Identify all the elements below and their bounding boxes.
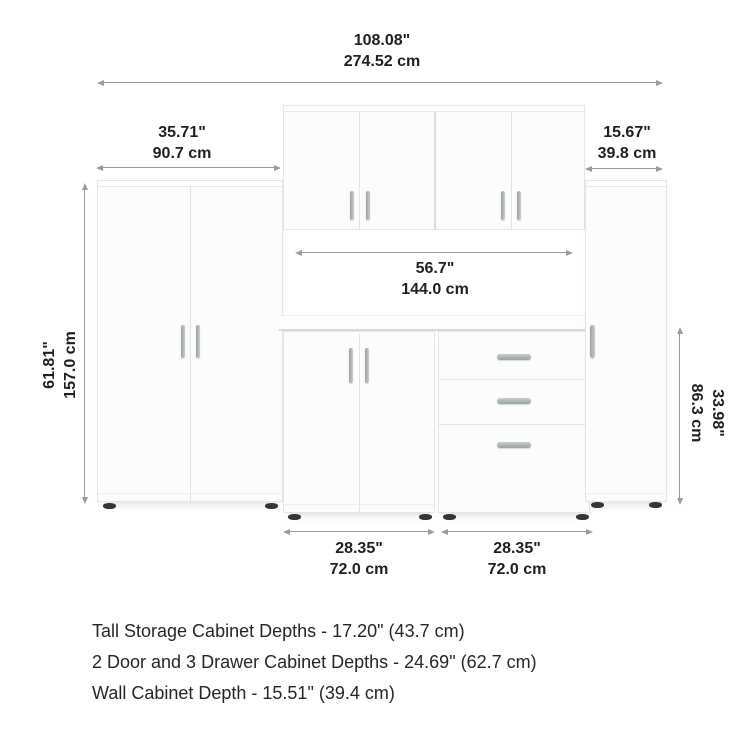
dim-value-cm: 72.0 cm	[417, 559, 617, 580]
dim-value-inches: 35.71"	[86, 122, 278, 143]
arrow-right-icon	[656, 166, 663, 172]
dim-line-tall-width	[96, 164, 281, 171]
door-handle-icon	[196, 325, 200, 358]
door-handle-icon	[365, 348, 369, 383]
dim-value-cm: 274.52 cm	[282, 51, 482, 72]
dim-value-inches: 61.81"	[39, 305, 60, 425]
dim-line-base-height	[676, 327, 683, 505]
cabinet-foot	[288, 514, 301, 520]
hutch-countertop	[279, 315, 592, 331]
unit-divider-seam	[434, 112, 436, 229]
note-wall-cabinet-depth: Wall Cabinet Depth - 15.51" (39.4 cm)	[92, 678, 537, 709]
dim-base-height-label: 33.98" 86.3 cm	[686, 353, 728, 473]
arrow-up-icon	[677, 327, 683, 334]
base-2door-cabinet	[283, 331, 435, 513]
dim-line-total-width	[97, 79, 663, 86]
drawer-seam	[439, 424, 589, 425]
dim-line-base-right-width	[441, 528, 593, 535]
wall-cabinet	[283, 105, 585, 230]
door-handle-icon	[349, 348, 353, 383]
door-handle-icon	[501, 191, 505, 220]
note-base-cabinet-depth: 2 Door and 3 Drawer Cabinet Depths - 24.…	[92, 647, 537, 678]
cabinet-foot	[649, 502, 662, 508]
cabinet-foot	[576, 514, 589, 520]
dim-value-cm: 86.3 cm	[686, 353, 707, 473]
dim-line-tall-height	[81, 183, 88, 504]
door-seam	[190, 187, 191, 501]
door-handle-icon	[366, 191, 370, 220]
dim-line-opening-width	[295, 249, 573, 256]
drawer-seam	[439, 379, 589, 380]
dim-value-cm: 39.8 cm	[567, 143, 687, 164]
arrow-down-icon	[82, 497, 88, 504]
dim-value-inches: 33.98"	[707, 353, 728, 473]
dim-line-base-left-width	[283, 528, 435, 535]
arrow-left-icon	[441, 529, 448, 535]
dim-value-cm: 90.7 cm	[86, 143, 278, 164]
arrow-left-icon	[96, 165, 103, 171]
note-tall-cabinet-depth: Tall Storage Cabinet Depths - 17.20" (43…	[92, 616, 537, 647]
dim-value-inches: 15.67"	[567, 122, 687, 143]
door-seam	[511, 112, 512, 229]
arrow-right-icon	[656, 80, 663, 86]
door-handle-icon	[181, 325, 185, 358]
door-seam	[359, 334, 360, 512]
kick-plate-line	[284, 504, 434, 505]
arrow-right-icon	[274, 165, 281, 171]
cabinet-foot	[419, 514, 432, 520]
door-handle-icon	[350, 191, 354, 220]
door-handle-icon	[517, 191, 521, 220]
arrow-left-icon	[295, 250, 302, 256]
arrow-left-icon	[97, 80, 104, 86]
arrow-right-icon	[428, 529, 435, 535]
product-dimension-diagram: 108.08" 274.52 cm 35.71" 90.7 cm 15.67" …	[0, 0, 755, 755]
dim-tall-height-label: 61.81" 157.0 cm	[39, 305, 81, 425]
dim-line-right-width	[585, 165, 663, 172]
cabinet-foot	[265, 503, 278, 509]
dim-value-inches: 28.35"	[417, 538, 617, 559]
dim-total-width-label: 108.08" 274.52 cm	[282, 30, 482, 72]
kick-plate-line	[586, 493, 666, 494]
left-tall-cabinet	[97, 180, 283, 502]
cabinet-foot	[103, 503, 116, 509]
cabinet-foot	[591, 502, 604, 508]
door-handle-icon	[590, 325, 595, 358]
dim-base-right-width-label: 28.35" 72.0 cm	[417, 538, 617, 580]
arrow-up-icon	[82, 183, 88, 190]
arrow-left-icon	[283, 529, 290, 535]
arrow-left-icon	[585, 166, 592, 172]
arrow-right-icon	[566, 250, 573, 256]
dim-value-inches: 56.7"	[335, 258, 535, 279]
arrow-right-icon	[586, 529, 593, 535]
drawer-handle-icon	[497, 442, 531, 448]
dim-tall-width-label: 35.71" 90.7 cm	[86, 122, 278, 164]
dim-right-width-label: 15.67" 39.8 cm	[567, 122, 687, 164]
arrow-down-icon	[677, 498, 683, 505]
dim-value-cm: 144.0 cm	[335, 279, 535, 300]
base-3drawer-cabinet	[438, 331, 590, 513]
drawer-handle-icon	[497, 354, 531, 360]
dim-value-cm: 157.0 cm	[60, 305, 81, 425]
cabinet-foot	[443, 514, 456, 520]
door-seam	[359, 112, 360, 229]
cabinet-top-edge	[586, 181, 666, 187]
depth-notes: Tall Storage Cabinet Depths - 17.20" (43…	[92, 616, 537, 709]
right-tall-cabinet	[585, 180, 667, 502]
kick-plate-line	[98, 493, 282, 494]
drawer-handle-icon	[497, 398, 531, 404]
dim-value-inches: 108.08"	[282, 30, 482, 51]
dim-opening-width-label: 56.7" 144.0 cm	[335, 258, 535, 300]
